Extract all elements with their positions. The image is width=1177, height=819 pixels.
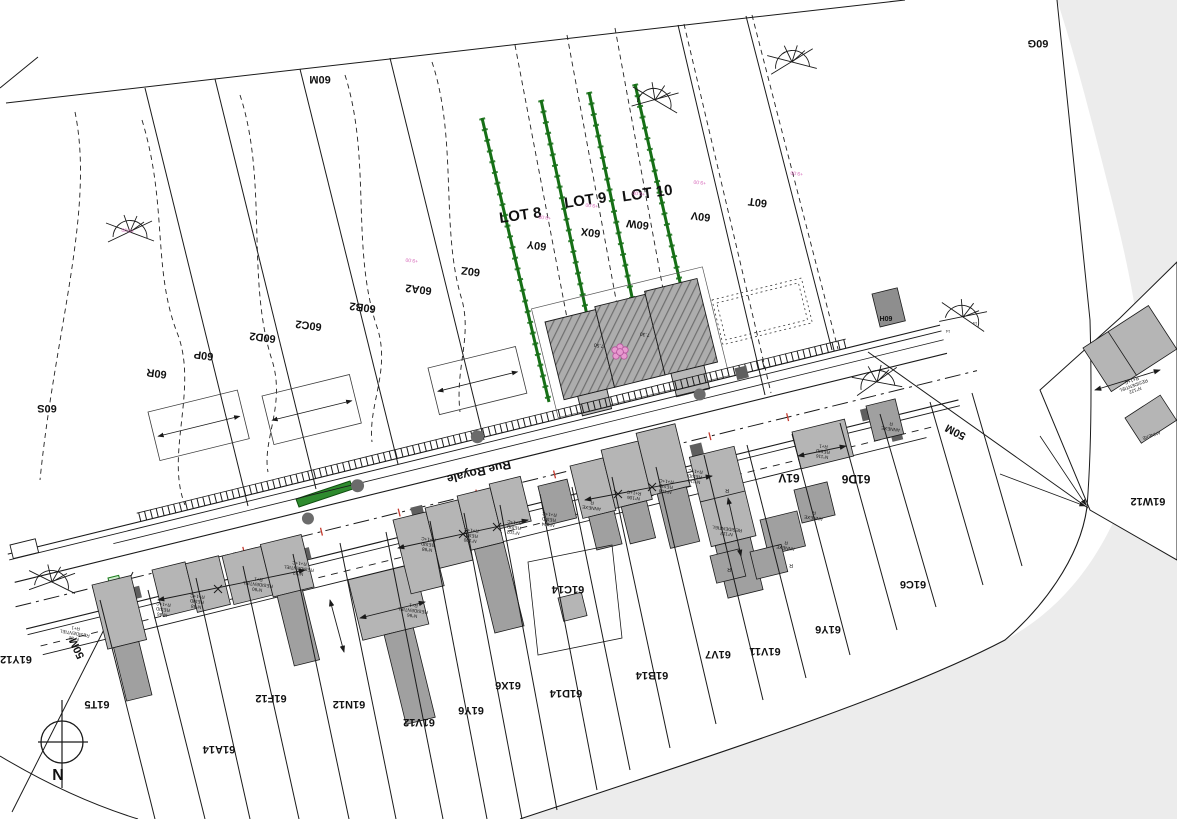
parcel-61v12: 61V12 [403, 716, 435, 728]
bldg-r-2: R [727, 566, 731, 572]
bldg-r-1: R [725, 487, 729, 493]
parcel-60y: 60Y [526, 238, 548, 252]
parcel-61d6: 61D6 [841, 472, 870, 486]
bldg-n108: N°108RESIDR+1+C [657, 478, 674, 495]
parcel-61w12: 61W12 [1131, 495, 1166, 507]
level-7: +9.00 [790, 169, 804, 177]
dim-750: 7.50 [593, 341, 604, 348]
parcel-61x6: 61X6 [495, 679, 521, 691]
bldg-n102: N°102RESIDR+1+C [505, 519, 522, 536]
bldg-n104: N°104RESIDR+1+C [540, 511, 557, 528]
parcel-61f12: 61F12 [255, 692, 286, 704]
fan-num-2: 14 [972, 321, 977, 326]
parcel-61a14: 61A14 [202, 743, 235, 755]
level-1: +9.00 [405, 256, 419, 264]
parcel-60x: 60X [580, 225, 602, 239]
fan-num-1: 14 [945, 329, 950, 334]
bldg-n106: N°106R+1+C [625, 489, 641, 501]
parcel-61v: 61V [778, 471, 799, 485]
dim-730: 7.30 [639, 330, 650, 337]
lot-10-label: LOT 10 [621, 182, 674, 206]
parcel-60b2: 60B2 [349, 299, 377, 314]
parcel-60c2: 60C2 [295, 317, 323, 332]
upper-parcel-dashed-lines [40, 15, 838, 505]
lot-8-label: LOT 8 [498, 204, 542, 227]
parcel-61t5: 61T5 [84, 698, 109, 710]
parcel-60h: 60H [880, 314, 893, 321]
green-island [296, 481, 353, 507]
parcel-61y6-b: 61Y6 [815, 623, 841, 635]
parcel-61d14: 61D14 [549, 687, 582, 699]
bldg-r-3: R [789, 562, 793, 568]
parcel-60m: 60M [309, 73, 330, 85]
site-plan-page: LOT 8LOT 9LOT 1060M60G60S60R60P60D260C26… [0, 0, 1177, 819]
parcel-61n12: 61N12 [333, 698, 365, 710]
level-2: +9.00 [538, 213, 552, 221]
parcel-61y12: 61Y12 [0, 653, 32, 665]
parcel-60v: 60V [690, 209, 712, 223]
parcel-61y6: 61Y6 [458, 704, 484, 716]
level-5: +9.00 [693, 178, 707, 186]
parcel-60g: 60G [1028, 37, 1049, 49]
parcel-61v11: 61V11 [749, 645, 780, 657]
outside-area [520, 0, 1177, 819]
parcel-60r: 60R [146, 366, 168, 380]
parcel-60s: 60S [37, 402, 57, 414]
parcel-60w: 60W [625, 217, 650, 232]
bldg-n100: N°100RESIDR+1+C [462, 527, 479, 544]
bldg-n110: N°110RESIDR+1+C [686, 468, 703, 485]
cadastral-plan-canvas: LOT 8LOT 9LOT 1060M60G60S60R60P60D260C26… [0, 0, 1177, 819]
north-letter: N [52, 767, 64, 784]
roadside-structure [10, 539, 39, 559]
facade-dimension-arrows [158, 370, 1160, 652]
parcel-60p: 60P [193, 348, 214, 362]
dim-50m-right: 50M [943, 421, 968, 441]
parcel-60z: 60Z [460, 264, 481, 278]
lot-9-label: LOT 9 [563, 189, 607, 212]
parcel-60t: 60T [747, 195, 768, 209]
parcel-61b14: 61B14 [635, 669, 668, 681]
parcel-61v7: 61V7 [705, 648, 731, 660]
parcel-60d2: 60D2 [249, 329, 277, 344]
parcel-61c6: 61C6 [900, 578, 926, 590]
parcel-61c14: 61C14 [551, 583, 584, 595]
parcel-60a2: 60A2 [405, 281, 433, 296]
